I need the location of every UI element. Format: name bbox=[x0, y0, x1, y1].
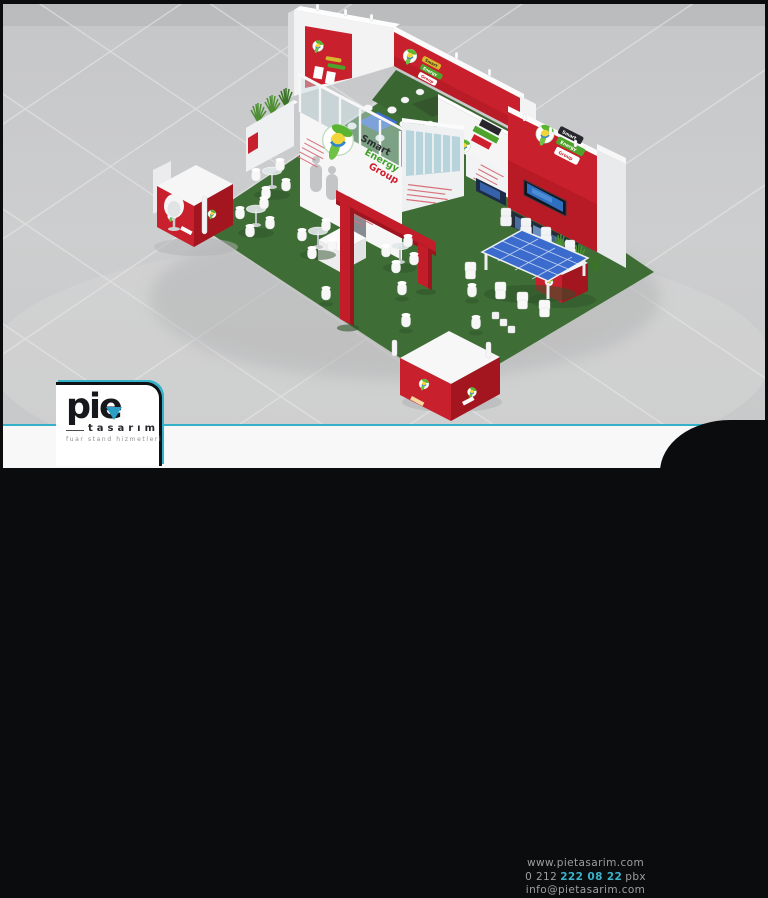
contact-info: www.pietasarim.com 0 212222 08 22pbx inf… bbox=[525, 857, 646, 898]
bottom-frame-band bbox=[0, 468, 768, 476]
booth-render: Smart Energy Group bbox=[0, 0, 768, 424]
render-stage: Smart Energy Group bbox=[0, 0, 768, 474]
frame-left bbox=[0, 0, 3, 474]
logo-drop-icon bbox=[106, 407, 122, 420]
frame-top bbox=[0, 0, 768, 4]
website: www.pietasarim.com bbox=[525, 857, 646, 871]
phone: 0 212222 08 22pbx bbox=[525, 871, 646, 885]
email: info@pietasarim.com bbox=[525, 884, 646, 898]
tower-glass-face bbox=[402, 118, 464, 212]
pie-tasarim-logo: pie tasarım fuar stand hizmetleri bbox=[56, 382, 162, 466]
phone-highlight: 222 08 22 bbox=[560, 871, 622, 883]
logo-underline bbox=[66, 430, 84, 431]
logo-tagline: fuar stand hizmetleri bbox=[66, 436, 159, 443]
logo-wordmark: pie bbox=[66, 389, 121, 425]
